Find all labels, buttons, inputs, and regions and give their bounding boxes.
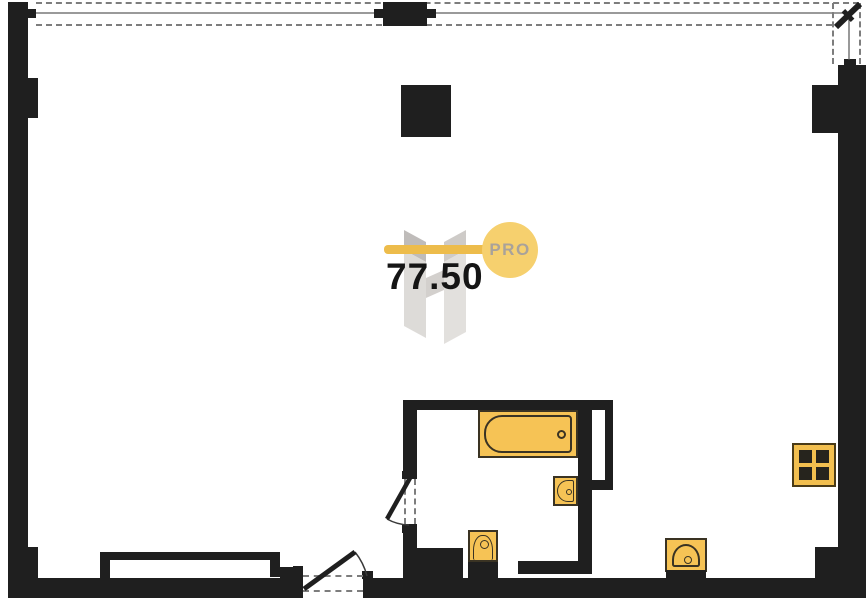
area-label: 77.50 [386, 256, 484, 298]
bathroom-wall-top [403, 400, 613, 410]
bathtub-icon [478, 410, 578, 458]
kitchen-sink-icon [665, 538, 707, 572]
toilet-cistern [468, 562, 498, 578]
window-dashed-line-outer [36, 2, 859, 4]
wall-bottom-left [38, 578, 303, 598]
toilet-icon [468, 530, 498, 562]
wall-corner-bottom-left [8, 547, 38, 598]
bathroom-wall-left-lower [403, 533, 417, 548]
kitchen-sink-base [666, 570, 706, 579]
bathtub-drain [557, 430, 566, 439]
wall-pier-left [28, 78, 38, 118]
column [401, 85, 451, 137]
washbasin-drain [566, 489, 572, 495]
stove-burner [799, 450, 812, 463]
radiator-cabinet-icon [100, 552, 303, 578]
radiator-outline-right-leg [270, 552, 280, 577]
window-glass-line [36, 12, 845, 14]
entrance-door-icon [295, 540, 377, 600]
window-mullion-nub-left [374, 9, 383, 18]
bathroom-door-swing-arc [387, 519, 409, 525]
bathroom-wall-bottom [518, 561, 592, 574]
bathroom-wall-right [578, 410, 592, 574]
vent-shaft-wall-right [605, 410, 613, 480]
radiator-outline-step [280, 567, 293, 578]
logo-bar [384, 245, 490, 254]
stove-burner [816, 450, 829, 463]
wall-pier-right [812, 85, 838, 133]
stove-icon [792, 443, 836, 487]
stove-burner [816, 467, 829, 480]
window-mullion-nub-right [427, 9, 436, 18]
logo-badge: PRO [482, 222, 538, 278]
vent-shaft-wall-bottom [578, 480, 613, 490]
window-frame-nub-left [28, 9, 36, 18]
radiator-outline-left-leg [100, 560, 110, 578]
bathroom-wall-left-upper [403, 410, 417, 471]
window-dashed-line-inner [36, 24, 832, 26]
wall-right [838, 65, 866, 547]
floor-plan-canvas: PRO 77.50 [0, 0, 866, 600]
kitchen-sink-drain [684, 556, 692, 564]
stove-burner [799, 467, 812, 480]
wall-left [8, 2, 28, 547]
entrance-door-leaf [304, 552, 355, 589]
toilet-drain [480, 540, 489, 549]
balcony-door-icon [828, 0, 866, 70]
radiator-outline-top [100, 552, 280, 560]
window-mullion-pier [383, 2, 427, 26]
bathroom-door-leaf [387, 478, 410, 519]
wall-bottom-right [363, 578, 815, 598]
wall-corner-bottom-right [815, 547, 866, 598]
entrance-door-swing-arc [355, 552, 367, 576]
bathroom-wall-stub [403, 548, 463, 578]
washbasin-icon [553, 476, 578, 506]
bathroom-door-icon [380, 470, 422, 532]
